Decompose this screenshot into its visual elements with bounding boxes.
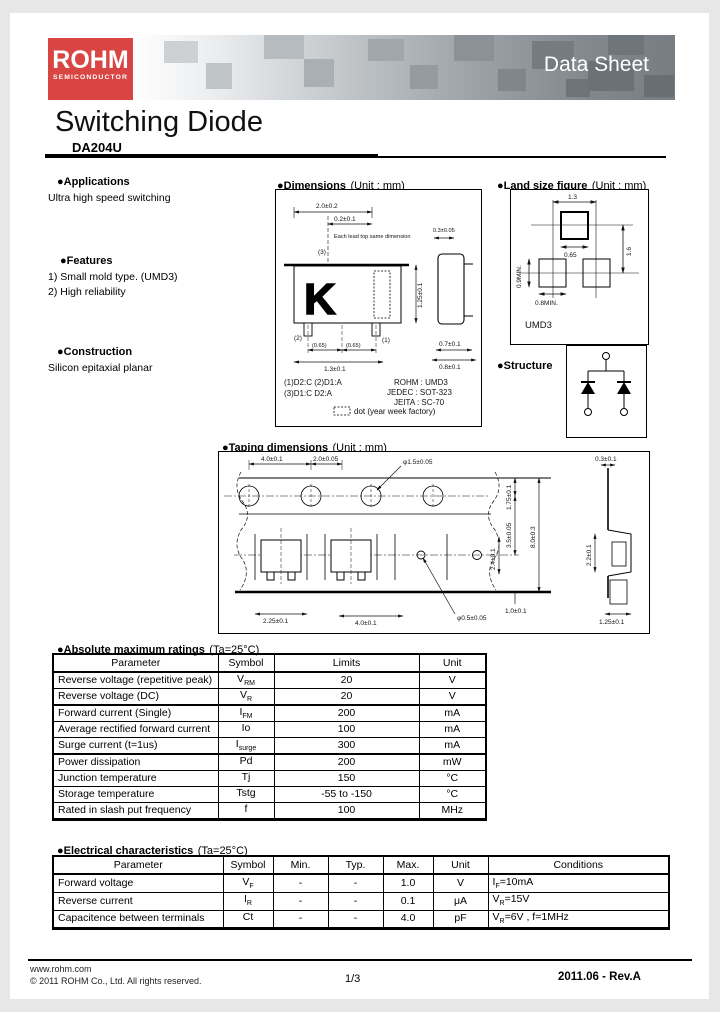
table-header-row: Parameter Symbol Limits Unit: [53, 654, 486, 672]
table-row: Average rectified forward currentIo100mA: [53, 722, 486, 738]
pixel-decoration: [368, 39, 404, 61]
svg-text:Each lead top same dimension: Each lead top same dimension: [334, 234, 411, 240]
absolute-maximum-ratings-table: Parameter Symbol Limits Unit Reverse vol…: [52, 653, 487, 821]
svg-text:0.7±0.1: 0.7±0.1: [439, 341, 461, 348]
svg-text:(0.65): (0.65): [346, 343, 361, 349]
table-row: Forward voltage VF - - 1.0 V IF=10mA: [53, 874, 669, 892]
rohm-logo-subtext: SEMICONDUCTOR: [48, 74, 133, 81]
svg-text:1.3: 1.3: [568, 194, 577, 201]
pixel-decoration: [304, 59, 334, 87]
pixel-decoration: [608, 35, 644, 55]
taping-drawing-box: 4.0±0.1 2.0±0.05 φ1.5±0.05: [218, 451, 650, 634]
page-number: 1/3: [345, 973, 360, 985]
svg-text:2.2±0.1: 2.2±0.1: [586, 544, 593, 566]
pixel-decoration: [566, 79, 590, 97]
svg-text:1.0±0.1: 1.0±0.1: [505, 608, 527, 615]
svg-text:UMD3: UMD3: [525, 320, 552, 331]
table-row: Reverse current IR - - 0.1 μA VR=15V: [53, 892, 669, 910]
features-item: 1) Small mold type. (UMD3): [48, 271, 178, 283]
svg-text:2.0±0.2: 2.0±0.2: [316, 203, 338, 210]
svg-text:1.25±0.1: 1.25±0.1: [599, 619, 625, 626]
svg-text:2.0±0.05: 2.0±0.05: [313, 456, 339, 463]
land-size-drawing: 1.3 0.65 1.6 0.9MIN. 0.8MIN. UMD3: [511, 190, 646, 342]
svg-text:K: K: [304, 275, 336, 324]
svg-text:0.3±0.05: 0.3±0.05: [433, 228, 455, 234]
page-title: Switching Diode: [55, 106, 263, 139]
svg-text:0.3±0.1: 0.3±0.1: [595, 456, 617, 463]
svg-text:(1): (1): [382, 337, 390, 344]
table-row: Storage temperatureTstg-55 to -150°C: [53, 787, 486, 803]
construction-text: Silicon epitaxial planar: [48, 362, 152, 374]
svg-text:JEDEC : SOT-323: JEDEC : SOT-323: [387, 388, 452, 397]
pixel-decoration: [498, 69, 526, 91]
svg-text:(2): (2): [294, 335, 302, 342]
structure-box: [566, 345, 647, 438]
svg-text:(3): (3): [318, 249, 326, 256]
footer-copyright: © 2011 ROHM Co., Ltd. All rights reserve…: [30, 976, 202, 986]
pixel-decoration: [644, 75, 674, 97]
electrical-characteristics-table: Parameter Symbol Min. Typ. Max. Unit Con…: [52, 855, 670, 930]
svg-text:3.5±0.05: 3.5±0.05: [506, 522, 513, 548]
svg-text:1.6: 1.6: [626, 247, 633, 256]
svg-text:2.4±0.1: 2.4±0.1: [490, 548, 497, 570]
svg-text:4.0±0.1: 4.0±0.1: [355, 620, 377, 627]
pixel-decoration: [454, 35, 494, 61]
svg-text:0.65: 0.65: [564, 252, 577, 259]
footer-url: www.rohm.com: [30, 964, 92, 974]
footer-rule: [28, 959, 692, 961]
applications-text: Ultra high speed switching: [48, 192, 171, 204]
table-row: Forward current (Single)IFM200mA: [53, 705, 486, 722]
svg-text:2.25±0.1: 2.25±0.1: [263, 618, 289, 625]
header-banner: Data Sheet: [136, 35, 675, 100]
title-rule-thick: [45, 154, 378, 158]
structure-heading: ●Structure: [497, 360, 553, 372]
svg-text:(0.65): (0.65): [312, 343, 327, 349]
dimensions-drawing-box: 2.0±0.2 0.2±0.1 (3) Each lead top same d…: [275, 189, 482, 427]
table-row: Surge current (t=1us)Isurge300mA: [53, 738, 486, 755]
title-rule-thin: [378, 156, 666, 158]
svg-text:0.9MIN.: 0.9MIN.: [516, 265, 523, 288]
taping-drawing: 4.0±0.1 2.0±0.05 φ1.5±0.05: [219, 452, 647, 631]
svg-text:(1)D2:C (2)D1:A: (1)D2:C (2)D1:A: [284, 378, 342, 387]
svg-text:1.75±0.1: 1.75±0.1: [506, 484, 513, 510]
page-root: ROHM SEMICONDUCTOR Data Sheet Switching …: [0, 0, 720, 1012]
svg-text:0.8MIN.: 0.8MIN.: [535, 300, 558, 307]
svg-text:1.3±0.1: 1.3±0.1: [324, 366, 346, 373]
document-type-label: Data Sheet: [544, 53, 649, 77]
features-item: 2) High reliability: [48, 286, 126, 298]
svg-text:ROHM : UMD3: ROHM : UMD3: [394, 378, 448, 387]
svg-text:JEITA : SC-70: JEITA : SC-70: [394, 398, 445, 407]
pixel-decoration: [410, 65, 438, 89]
svg-text:(3)D1:C D2:A: (3)D1:C D2:A: [284, 389, 333, 398]
table-row: Rated in slash put frequencyf100MHz: [53, 803, 486, 820]
construction-heading: ●Construction: [57, 346, 132, 358]
part-number: DA204U: [72, 140, 122, 155]
svg-text:dot (year week factory): dot (year week factory): [354, 407, 436, 416]
svg-text:φ1.5±0.05: φ1.5±0.05: [403, 459, 433, 466]
table-row: Capacitence between terminals Ct - - 4.0…: [53, 910, 669, 928]
pixel-decoration: [206, 63, 232, 89]
rohm-logo: ROHM SEMICONDUCTOR: [48, 38, 133, 100]
svg-text:8.0±0.3: 8.0±0.3: [530, 526, 537, 548]
pixel-decoration: [164, 41, 198, 63]
svg-text:φ0.5±0.05: φ0.5±0.05: [457, 615, 487, 622]
structure-drawing: [567, 346, 644, 435]
svg-text:0.2±0.1: 0.2±0.1: [334, 216, 356, 223]
table-row: Reverse voltage (DC)VR20V: [53, 689, 486, 706]
applications-heading: ●Applications: [57, 176, 130, 188]
svg-text:0.8±0.1: 0.8±0.1: [439, 364, 461, 371]
dimensions-drawing: 2.0±0.2 0.2±0.1 (3) Each lead top same d…: [276, 190, 479, 424]
table-row: Junction temperatureTj150°C: [53, 771, 486, 787]
svg-text:1.25±0.1: 1.25±0.1: [417, 282, 424, 308]
rohm-logo-text: ROHM: [48, 47, 133, 73]
table-row: Reverse voltage (repetitive peak)VRM20V: [53, 672, 486, 689]
pixel-decoration: [264, 35, 304, 59]
table-row: Power dissipationPd200mW: [53, 754, 486, 771]
land-size-box: 1.3 0.65 1.6 0.9MIN. 0.8MIN. UMD3: [510, 189, 649, 345]
svg-text:4.0±0.1: 4.0±0.1: [261, 456, 283, 463]
features-heading: ●Features: [60, 255, 113, 267]
table-header-row: Parameter Symbol Min. Typ. Max. Unit Con…: [53, 856, 669, 874]
revision-label: 2011.06 - Rev.A: [558, 971, 641, 983]
